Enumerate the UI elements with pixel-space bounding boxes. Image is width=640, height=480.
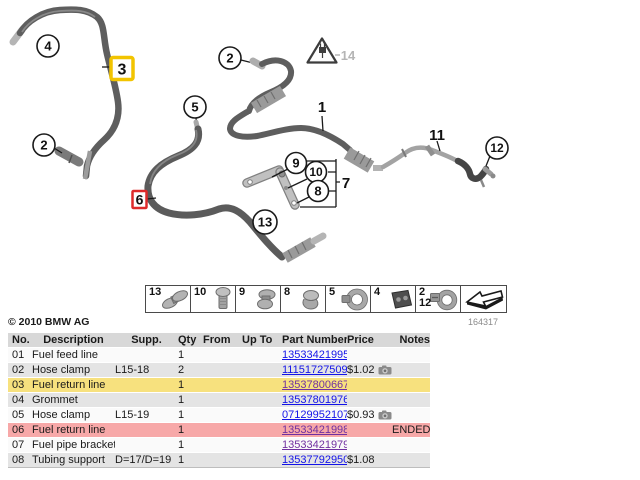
leader-1 (322, 116, 323, 131)
cell-notes (392, 408, 430, 423)
svg-text:5: 5 (191, 100, 198, 115)
part-number-link[interactable]: 13537801976 (282, 394, 347, 406)
callout-6-highlighted[interactable]: 6 (133, 191, 147, 208)
cell-part-number: 13533421979 (282, 438, 347, 453)
part-number-link[interactable]: 13537792950 (282, 454, 347, 466)
hose-6-end-cap (314, 236, 323, 241)
svg-text:6: 6 (136, 192, 144, 208)
thumbnail-box-13: 13 (145, 285, 191, 313)
cell-part-number: 13537801976 (282, 393, 347, 408)
cell-description: Fuel pipe bracket (32, 438, 115, 453)
cell-description: Grommet (32, 393, 115, 408)
cell-no: 06 (8, 423, 32, 438)
direction-arrow-icon (462, 286, 504, 312)
thumbnail-label: 4 (374, 287, 380, 298)
hose-clamp-icon (341, 287, 369, 311)
cell-from (203, 408, 242, 423)
cell-up-to (242, 423, 282, 438)
cell-qty: 1 (178, 348, 203, 363)
cell-no: 02 (8, 363, 32, 378)
cell-price (347, 378, 392, 393)
svg-text:9: 9 (292, 156, 299, 171)
callout-10[interactable]: 10 (306, 162, 327, 183)
cell-from (203, 348, 242, 363)
callout-2-left[interactable]: 2 (33, 134, 55, 156)
cell-from (203, 363, 242, 378)
header-no: No. (8, 333, 32, 348)
svg-text:4: 4 (44, 39, 52, 54)
callout-3-highlighted[interactable]: 3 (111, 58, 133, 80)
table-row: 01Fuel feed line113533421995 (8, 348, 430, 363)
leader-10 (288, 179, 307, 188)
part-number-link[interactable]: 13533421995 (282, 349, 347, 361)
assembly-fuel-pipe-11: 11 12 (373, 127, 508, 187)
cell-part-number: 13537800667 (282, 378, 347, 393)
header-part-number: Part Number (282, 333, 347, 348)
cell-supp (115, 378, 178, 393)
photo-icon (378, 365, 392, 375)
parts-table: No. Description Supp. Qty From Up To Par… (8, 333, 430, 468)
thumbnail-box-2-12: 212 (415, 285, 461, 313)
callout-13[interactable]: 13 (253, 210, 277, 234)
thumbnail-box-arrow (460, 285, 507, 313)
cell-from (203, 393, 242, 408)
hose-6-highlight (150, 130, 197, 184)
cell-up-to (242, 363, 282, 378)
thumbnail-label: 5 (329, 287, 335, 298)
thumbnail-label: 9 (239, 287, 245, 298)
leader-8 (297, 197, 309, 203)
copyright-notice: © 2010 BMW AG (8, 316, 89, 328)
thumbnail-box-4: 4 (370, 285, 416, 313)
assembly-pipe-bracket: 9 10 8 7 (247, 153, 350, 208)
table-row: 02Hose clampL15-18211151727509$1.02 (8, 363, 430, 378)
bracket-hole-bottom (292, 201, 297, 206)
grommet-block-icon (388, 287, 414, 311)
header-qty: Qty (178, 333, 203, 348)
cell-description: Hose clamp (32, 363, 115, 378)
table-row: 07Fuel pipe bracket113533421979 (8, 438, 430, 453)
cell-up-to (242, 348, 282, 363)
cell-supp (115, 393, 178, 408)
svg-text:2: 2 (226, 51, 233, 66)
clip-double-icon (161, 287, 189, 311)
cell-from (203, 438, 242, 453)
thumbnail-box-9: 9 (235, 285, 281, 313)
cell-notes (392, 453, 430, 468)
header-supp: Supp. (115, 333, 178, 348)
assembly-fuel-feed-line: 4 2 3 (13, 10, 133, 179)
cell-part-number: 13533421998 (282, 423, 347, 438)
hose-6-end-coupler (285, 242, 313, 258)
thumbnail-box-10: 10 (190, 285, 236, 313)
cell-from (203, 423, 242, 438)
cell-supp (115, 348, 178, 363)
svg-text:13: 13 (258, 215, 272, 230)
parts-catalog-page: 4 2 3 2 (0, 0, 640, 480)
cell-no: 03 (8, 378, 32, 393)
callout-12[interactable]: 12 (486, 137, 508, 159)
cell-qty: 1 (178, 423, 203, 438)
hose-clamp-screw-icon (429, 287, 459, 311)
callout-4[interactable]: 4 (37, 35, 59, 57)
cell-qty: 1 (178, 438, 203, 453)
cell-notes (392, 393, 430, 408)
header-description: Description (32, 333, 115, 348)
header-price: Price (347, 333, 392, 348)
cell-price: $1.02 (347, 363, 392, 378)
cell-part-number: 11151727509 (282, 363, 347, 378)
cell-up-to (242, 393, 282, 408)
cell-no: 08 (8, 453, 32, 468)
cell-qty: 1 (178, 393, 203, 408)
callout-8[interactable]: 8 (308, 181, 329, 202)
table-row: 03Fuel return line113537800667 (8, 378, 430, 393)
cell-up-to (242, 378, 282, 393)
part-number-link[interactable]: 13537800667 (282, 379, 347, 391)
parts-table-body: 01Fuel feed line11353342199502Hose clamp… (8, 348, 430, 468)
pipe-11-elbow (458, 161, 486, 179)
svg-text:8: 8 (314, 184, 321, 199)
cell-description: Fuel return line (32, 378, 115, 393)
cell-up-to (242, 438, 282, 453)
parts-diagram: 4 2 3 2 (0, 0, 640, 332)
part-number-link[interactable]: 11151727509 (282, 364, 347, 376)
thumbnail-label: 13 (149, 287, 161, 298)
pipe-11-path (383, 148, 459, 167)
diagram-number: 164317 (400, 317, 498, 327)
cell-qty: 1 (178, 453, 203, 468)
cell-price (347, 348, 392, 363)
leader-12 (486, 156, 490, 166)
header-from: From (203, 333, 242, 348)
hose-1-coupler (254, 91, 283, 108)
svg-text:3: 3 (118, 62, 127, 79)
cell-supp: L15-19 (115, 408, 178, 423)
table-header-row: No. Description Supp. Qty From Up To Par… (8, 333, 430, 348)
cell-part-number: 13533421995 (282, 348, 347, 363)
bolt-icon (212, 287, 234, 312)
cell-part-number: 07129952107 (282, 408, 347, 423)
thumbnail-strip: 13109854212 (145, 285, 507, 313)
cell-price: $1.08 (347, 453, 392, 468)
hose-1-lower (230, 112, 350, 150)
cell-notes (392, 438, 430, 453)
photo-icon (378, 410, 392, 420)
cell-price (347, 393, 392, 408)
cell-price (347, 438, 392, 453)
cell-description: Fuel return line (32, 423, 115, 438)
callout-7[interactable]: 7 (342, 175, 350, 192)
table-row: 06Fuel return line113533421998ENDED (8, 423, 430, 438)
svg-text:2: 2 (40, 138, 47, 153)
cell-from (203, 378, 242, 393)
thumbnail-label: 10 (194, 287, 206, 298)
cell-description: Fuel feed line (32, 348, 115, 363)
pipe-11-tip (491, 174, 496, 179)
cell-supp (115, 423, 178, 438)
header-notes: Notes (392, 333, 430, 348)
assembly-fuel-return-line: 5 6 13 (133, 96, 324, 258)
cell-up-to (242, 408, 282, 423)
callout-1[interactable]: 1 (318, 99, 326, 116)
cell-supp: D=17/D=19 (115, 453, 178, 468)
header-up-to: Up To (242, 333, 282, 348)
cell-description: Tubing support (32, 453, 115, 468)
part-number-link[interactable]: 13533421979 (282, 439, 347, 451)
clamp-half-icon (298, 287, 324, 311)
thumbnail-box-8: 8 (280, 285, 326, 313)
bracket-pin (284, 186, 288, 190)
warning-triangle-icon (308, 39, 337, 63)
thumbnail-box-5: 5 (325, 285, 371, 313)
table-row: 04Grommet113537801976 (8, 393, 430, 408)
cell-notes (392, 363, 430, 378)
callout-14: 14 (341, 48, 356, 63)
callout-5[interactable]: 5 (184, 96, 206, 118)
cell-supp (115, 438, 178, 453)
cell-from (203, 453, 242, 468)
cell-description: Hose clamp (32, 408, 115, 423)
thumbnail-label: 8 (284, 287, 290, 298)
thumbnail-label: 212 (419, 287, 431, 309)
cell-notes (392, 348, 430, 363)
cell-qty: 1 (178, 378, 203, 393)
bracket-hole-top (248, 180, 253, 185)
svg-text:10: 10 (309, 165, 323, 179)
cell-up-to (242, 453, 282, 468)
table-row: 08Tubing supportD=17/D=19113537792950$1.… (8, 453, 430, 468)
svg-text:12: 12 (490, 141, 504, 155)
cell-part-number: 13537792950 (282, 453, 347, 468)
clip-icon (253, 287, 279, 311)
cell-price: $0.93 (347, 408, 392, 423)
callout-11[interactable]: 11 (429, 127, 445, 144)
pipe-ring-2 (427, 146, 433, 155)
cell-price (347, 423, 392, 438)
cell-qty: 1 (178, 408, 203, 423)
pipe-11-drain (481, 180, 484, 187)
cell-notes: ENDED (392, 423, 430, 438)
cell-supp: L15-18 (115, 363, 178, 378)
cell-notes (392, 378, 430, 393)
assembly-fuel-hose-1: 2 1 14 (219, 39, 371, 168)
callout-9[interactable]: 9 (286, 153, 307, 174)
part-number-link[interactable]: 13533421998 (282, 424, 347, 436)
part-number-link[interactable]: 07129952107 (282, 409, 347, 421)
hose-6-path (148, 129, 282, 257)
cell-no: 01 (8, 348, 32, 363)
cell-no: 05 (8, 408, 32, 423)
cell-qty: 2 (178, 363, 203, 378)
callout-2-top[interactable]: 2 (219, 47, 241, 69)
cell-no: 07 (8, 438, 32, 453)
cell-no: 04 (8, 393, 32, 408)
table-row: 05Hose clampL15-19107129952107$0.93 (8, 408, 430, 423)
